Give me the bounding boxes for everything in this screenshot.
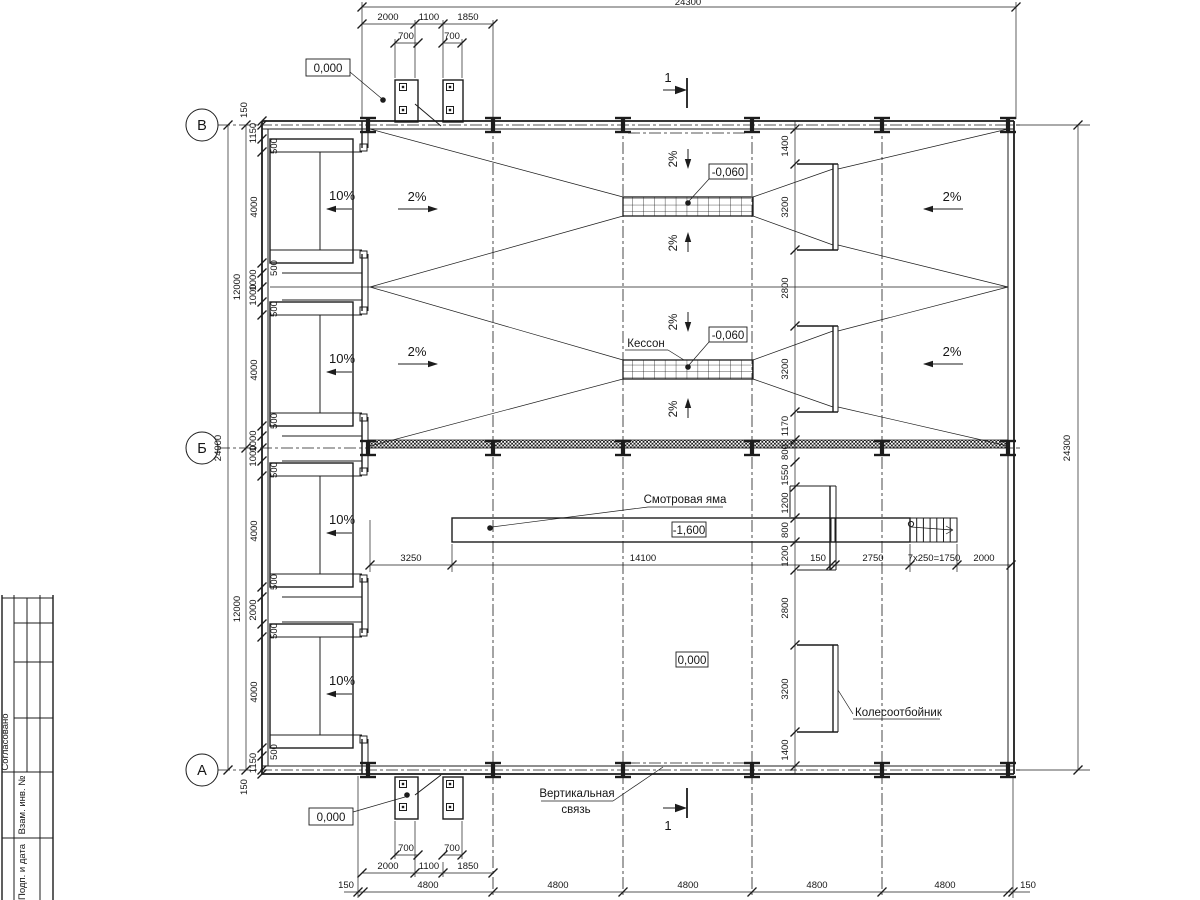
dim-1100-bot: 1100	[419, 861, 439, 872]
dim-500-2: 500	[269, 260, 280, 276]
dim-2000-top: 2000	[377, 12, 398, 23]
dim-800-trench: 800	[780, 444, 791, 460]
dim-24300-right: 24300	[1062, 435, 1073, 461]
dim-500-4: 500	[269, 413, 280, 429]
dim-4000-2: 4000	[249, 359, 260, 380]
roof-drainage: 2% 2% -0,060 2% 2% -0,060 Кессон 2%	[270, 129, 1008, 446]
dim-1850-bot: 1850	[457, 861, 478, 872]
elevation-value-zero-top: 0,000	[314, 63, 343, 75]
dim-4800-3: 4800	[677, 880, 698, 891]
dim-2800-2: 2800	[780, 597, 791, 618]
dim-1000-2: 1000	[248, 284, 259, 305]
entrance-top: 0,000	[306, 59, 463, 126]
elevation-value-zero-floor: 0,000	[678, 655, 707, 667]
elevation-value-zero-bottom: 0,000	[317, 812, 346, 824]
slope-label-10-2: 10%	[329, 351, 355, 366]
dim-700-bot-1: 700	[398, 843, 414, 854]
dim-700-bot-2: 700	[444, 843, 460, 854]
trench-drain	[368, 440, 1008, 448]
section-mark-bottom: 1	[664, 818, 671, 833]
dim-1400-top: 1400	[780, 135, 791, 156]
dim-2800-1: 2800	[780, 277, 791, 298]
inspection-pit-label: Смотровая яма	[644, 494, 727, 506]
entrance-bottom: 0,000	[309, 775, 463, 825]
wheel-stop-label: Колесоотбойник	[855, 707, 943, 719]
dim-2000-bot: 2000	[377, 861, 398, 872]
dim-1200-2: 1200	[780, 545, 791, 566]
dim-14100: 14100	[630, 553, 656, 564]
wheel-stop: Колесоотбойник 0,000	[676, 645, 943, 732]
slope-label-2-right-1: 2%	[943, 189, 962, 204]
ramps: 10% 10% 10% 10%	[270, 139, 367, 748]
dim-4000-1: 4000	[249, 196, 260, 217]
section-marks: 1 1	[663, 70, 687, 833]
vertical-brace-label-2: связь	[561, 804, 590, 816]
elevation-value-060-2: -0,060	[712, 330, 745, 342]
dim-150-bot-left: 150	[338, 880, 354, 891]
pit-stairs	[908, 518, 957, 542]
elevation-value-060-1: -0,060	[712, 167, 745, 179]
dim-3200-3: 3200	[780, 678, 791, 699]
dim-500-8: 500	[269, 744, 280, 760]
caisson-1: 2% 2% -0,060	[370, 129, 1008, 287]
dim-800-pit: 800	[780, 522, 791, 538]
dim-2000-pit: 2000	[973, 553, 994, 564]
caisson-2: 2% 2% -0,060 Кессон	[370, 287, 1008, 446]
dim-3200-2: 3200	[780, 358, 791, 379]
drawing-sheet: Согласовано Взам. инв. № Подп. и дата В …	[0, 0, 1200, 900]
slope-label-10-3: 10%	[329, 512, 355, 527]
dim-500-1: 500	[269, 138, 280, 154]
dim-150-topleft: 150	[239, 102, 250, 118]
dim-1100-top: 1100	[419, 12, 439, 23]
slope-label-2-c2-bot: 2%	[668, 401, 680, 418]
titleblock-podp-data: Подп. и дата	[17, 843, 28, 900]
axis-label-b: Б	[197, 441, 207, 457]
dim-500-6: 500	[269, 574, 280, 590]
grid-axes: В Б А	[186, 109, 1020, 898]
dim-1550: 1550	[780, 464, 791, 485]
dim-4800-2: 4800	[547, 880, 568, 891]
inspection-pit: Смотровая яма -1,600 3250 14100 150 2750…	[366, 486, 1016, 572]
dim-1170: 1170	[780, 416, 791, 436]
dim-500-3: 500	[269, 301, 280, 317]
ramp-4: 10%	[270, 624, 367, 748]
section-mark-top: 1	[664, 70, 671, 85]
dim-1200-1: 1200	[780, 492, 791, 513]
slope-label-10-1: 10%	[329, 188, 355, 203]
dim-500-7: 500	[269, 623, 280, 639]
dim-12000-bottom: 12000	[232, 596, 243, 622]
title-block: Согласовано Взам. инв. № Подп. и дата	[0, 595, 53, 900]
dim-700-top-2: 700	[444, 31, 460, 42]
dim-1000-4: 1000	[248, 445, 259, 466]
dim-1400-bottom: 1400	[780, 739, 791, 760]
dim-4000-3: 4000	[249, 520, 260, 541]
titleblock-agreed: Согласовано	[0, 713, 11, 770]
vertical-brace-label-1: Вертикальная	[539, 788, 614, 800]
dim-4000-4: 4000	[249, 681, 260, 702]
dim-150-bottomleft: 150	[239, 779, 250, 795]
axis-label-v: В	[197, 118, 207, 134]
dim-2000-left: 2000	[248, 599, 259, 620]
dim-stair: 7х250=1750	[908, 553, 961, 564]
ramp-2: 10%	[270, 302, 367, 426]
top-dimensions: 24300 2000 1100 1850 700 700	[358, 0, 1021, 119]
titleblock-zam-inv: Взам. инв. №	[17, 776, 28, 835]
dim-3250: 3250	[400, 553, 421, 564]
dim-4800-5: 4800	[934, 880, 955, 891]
dim-150-pit: 150	[810, 553, 826, 564]
dim-1150-top: 1150	[248, 123, 259, 143]
dim-500-5: 500	[269, 462, 280, 478]
dim-4800-4: 4800	[806, 880, 827, 891]
axis-label-a: А	[197, 763, 207, 779]
dim-1150-bottom: 1150	[248, 753, 259, 773]
slope-label-2-left-2: 2%	[408, 344, 427, 359]
dim-2750: 2750	[862, 553, 883, 564]
dim-4800-1: 4800	[417, 880, 438, 891]
slope-label-2-c1-top: 2%	[668, 151, 680, 168]
caisson-grate-1	[623, 197, 753, 216]
slope-label-2-right-2: 2%	[943, 344, 962, 359]
floor-plan-drawing: Согласовано Взам. инв. № Подп. и дата В …	[0, 0, 1200, 900]
dim-12000-top: 12000	[232, 274, 243, 300]
kesson-label: Кессон	[627, 338, 664, 350]
slope-label-2-left-1: 2%	[408, 189, 427, 204]
dim-1850-top: 1850	[457, 12, 478, 23]
dim-700-top-1: 700	[398, 31, 414, 42]
dim-24000: 24000	[213, 435, 224, 461]
ramp-3: 10%	[270, 463, 367, 587]
dim-150-bot-right: 150	[1020, 880, 1036, 891]
slope-label-2-c1-bot: 2%	[668, 235, 680, 252]
elevation-value-1600: -1,600	[673, 525, 706, 537]
dim-3200-1: 3200	[780, 196, 791, 217]
slope-label-2-c2-top: 2%	[668, 314, 680, 331]
dim-24300-top: 24300	[675, 0, 701, 8]
slope-label-10-4: 10%	[329, 673, 355, 688]
ramp-1: 10%	[270, 139, 367, 263]
